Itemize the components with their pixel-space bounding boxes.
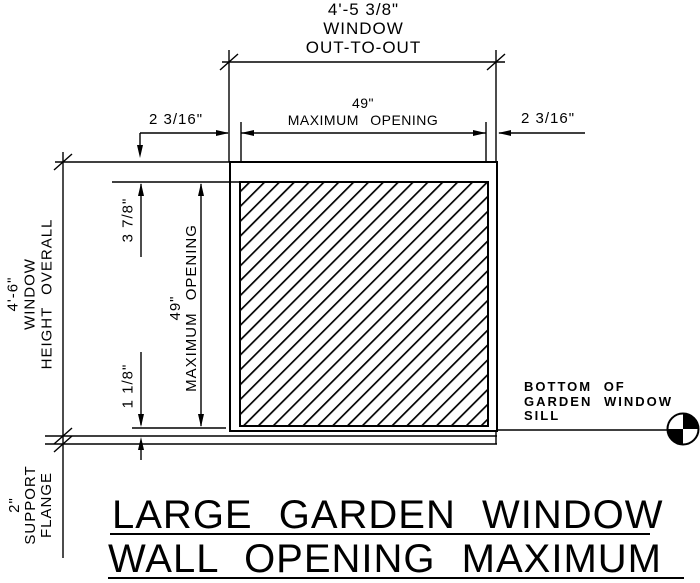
callout-line3: SILL xyxy=(524,409,673,424)
dim-opening-height-text: MAXIMUM OPENING xyxy=(184,224,200,392)
callout-bottom-of-sill: BOTTOM OF GARDEN WINDOW SILL xyxy=(524,380,673,424)
callout-line1: BOTTOM OF xyxy=(524,380,673,395)
dim-opening-width-text: MAXIMUM OPENING xyxy=(240,112,486,129)
dim-support-flange-text2: SUPPORT xyxy=(23,465,39,544)
drawing-title-line2: WALL OPENING MAXIMUM xyxy=(108,537,662,582)
dim-height-overall-text3: HEIGHT OVERALL xyxy=(39,219,56,370)
wall-opening-hatch xyxy=(240,182,488,426)
drawing-canvas: 4'-5 3/8" WINDOW OUT-TO-OUT 49" MAXIMUM … xyxy=(0,0,700,583)
dim-jamb-right-lines xyxy=(498,130,585,136)
dim-opening-height-label: 49" MAXIMUM OPENING xyxy=(168,224,200,392)
dim-out-to-out-label: 4'-5 3/8" WINDOW OUT-TO-OUT xyxy=(230,0,497,57)
dim-opening-width-label: 49" MAXIMUM OPENING xyxy=(240,95,486,129)
dim-out-to-out-text3: OUT-TO-OUT xyxy=(230,38,497,57)
dim-out-to-out-text2: WINDOW xyxy=(230,19,497,38)
dim-height-overall-lines xyxy=(54,152,232,452)
dim-support-flange-label: 2" SUPPORT FLANGE xyxy=(7,465,55,544)
dim-jamb-left-lines xyxy=(137,130,229,158)
dim-sill-gap-label: 1 1/8" xyxy=(120,364,137,409)
dim-opening-width-value: 49" xyxy=(240,95,486,112)
dim-head-gap-label: 3 7/8" xyxy=(120,198,137,243)
dim-out-to-out-value: 4'-5 3/8" xyxy=(230,0,497,19)
dim-support-flange-value: 2" xyxy=(7,465,23,544)
drawing-title-line1: LARGE GARDEN WINDOW xyxy=(112,493,663,538)
dim-height-overall-text2: WINDOW xyxy=(22,219,39,370)
dim-opening-height-value: 49" xyxy=(168,224,184,392)
callout-line2: GARDEN WINDOW xyxy=(524,395,673,410)
dim-height-overall-label: 4'-6" WINDOW HEIGHT OVERALL xyxy=(5,219,56,370)
dim-support-flange-text3: FLANGE xyxy=(39,465,55,544)
dim-jamb-right-label: 2 3/16" xyxy=(504,110,592,127)
dim-height-overall-value: 4'-6" xyxy=(5,219,22,370)
dim-jamb-left-label: 2 3/16" xyxy=(130,111,222,128)
window-frame xyxy=(45,162,497,444)
